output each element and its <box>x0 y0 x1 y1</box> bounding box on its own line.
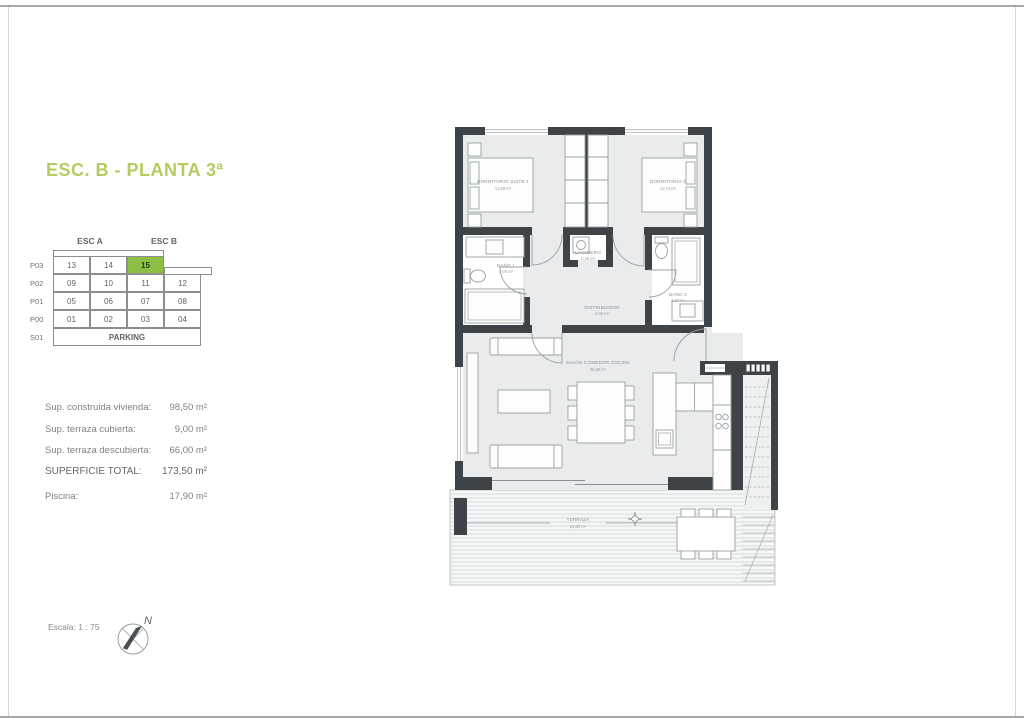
terrace <box>450 490 775 585</box>
room-area-distribuidor: 2,90 m² <box>595 311 610 316</box>
room-area-salon: 38,89 m² <box>590 367 607 372</box>
kitchen-island <box>653 373 676 455</box>
page-border-right <box>1015 7 1016 716</box>
room-area-bano1: 4,09 m² <box>499 269 514 274</box>
unit-cell: 14 <box>90 256 127 274</box>
room-label-suite1: DORMITORIO SUITE 1 <box>477 179 529 184</box>
unit-cell: 09 <box>53 274 90 292</box>
page-border-bottom <box>0 716 1024 718</box>
floor-plan: DORMITORIO SUITE 1 13,68 m² DORMITORIO 2… <box>440 105 790 605</box>
unit-cell: 01 <box>53 310 90 328</box>
unit-cell: 12 <box>164 274 201 292</box>
unit-cell-highlighted: 15 <box>127 256 164 274</box>
tv-unit <box>467 353 478 453</box>
unit-cell: 02 <box>90 310 127 328</box>
surface-value: 9,00 m² <box>175 424 207 435</box>
table-header-esc-b: ESC B <box>127 236 201 248</box>
surface-label: Sup. terraza cubierta: <box>45 424 136 435</box>
surface-value: 66,00 m² <box>170 445 208 456</box>
unit-cell: 05 <box>53 292 90 310</box>
stairwell <box>743 375 771 510</box>
outdoor-table <box>677 509 735 559</box>
table-header-esc-a: ESC A <box>53 236 127 248</box>
north-compass-icon: N <box>110 612 160 664</box>
unit-cell: 13 <box>53 256 90 274</box>
room-label-dorm2: DORMITORIO 2 <box>650 179 686 184</box>
page-border-top <box>0 5 1024 7</box>
row-label: P01 <box>30 292 52 310</box>
page-title: ESC. B - PLANTA 3ª <box>46 160 224 181</box>
unit-cell: 08 <box>164 292 201 310</box>
room-label-lavadero: LAVADERO <box>575 250 601 255</box>
row-label: P00 <box>30 310 52 328</box>
parking-cell: PARKING <box>53 328 201 346</box>
room-label-terraza: TERRAZA <box>567 517 591 522</box>
surface-label: Piscina: <box>45 491 78 502</box>
surface-value-total: 173,50 m² <box>162 466 207 477</box>
scale-label: Escala: 1 : 75 <box>48 622 100 632</box>
room-label-salon: SALÓN COMEDOR COCINA <box>566 359 631 365</box>
row-label: P02 <box>30 274 52 292</box>
surface-label: Sup. construida vivienda: <box>45 402 151 413</box>
sofa-top <box>490 338 562 355</box>
room-area-bano2: 4,27 m² <box>671 298 686 303</box>
unit-cell: 10 <box>90 274 127 292</box>
room-area-suite1: 13,68 m² <box>495 186 512 191</box>
row-label: S01 <box>30 328 52 346</box>
room-label-bano2: BAÑO 2 <box>669 291 687 297</box>
kitchen-appliances <box>676 383 713 411</box>
room-area-lavadero: 2,38 m² <box>581 256 596 261</box>
surface-label-total: SUPERFICIE TOTAL: <box>45 466 142 477</box>
room-area-terraza: 23,62 m² <box>570 524 587 529</box>
compass-north-label: N <box>144 615 152 627</box>
sofa-bottom <box>490 445 562 468</box>
unit-location-table: ESC A ESC B P03 P02 P01 P00 S01 13 14 15… <box>30 234 216 348</box>
room-label-distribuidor: DISTRIBUIDOR <box>584 305 620 310</box>
kitchen-counter <box>713 375 731 490</box>
unit-cell: 06 <box>90 292 127 310</box>
surface-value: 17,90 m² <box>170 491 208 502</box>
plan-sheet: ESC. B - PLANTA 3ª ESC A ESC B P03 P02 P… <box>0 0 1024 723</box>
surface-value: 98,50 m² <box>170 402 208 413</box>
room-label-bano1: BAÑO 1 <box>497 262 515 268</box>
unit-cell: 11 <box>127 274 164 292</box>
unit-cell: 04 <box>164 310 201 328</box>
page-border-left <box>8 7 9 716</box>
terrace-pillar <box>454 498 467 535</box>
unit-cell: 07 <box>127 292 164 310</box>
unit-cell: 03 <box>127 310 164 328</box>
surface-label: Sup. terraza descubierta: <box>45 445 151 456</box>
room-area-dorm2: 12,74 m² <box>660 186 677 191</box>
row-label: P03 <box>30 256 52 274</box>
coffee-table <box>498 390 550 413</box>
dining-set <box>568 382 634 443</box>
